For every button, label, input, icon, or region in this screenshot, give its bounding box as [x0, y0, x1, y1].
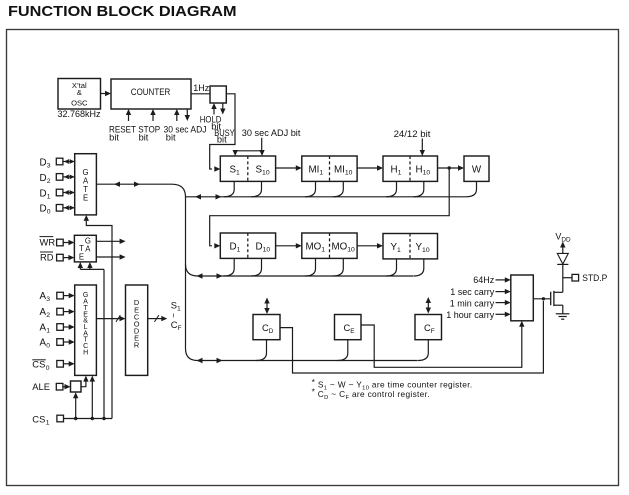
svg-text:0: 0	[46, 343, 50, 350]
svg-text:D: D	[40, 188, 47, 199]
svg-text:~: ~	[169, 313, 178, 318]
svg-text:STD.P: STD.P	[582, 273, 607, 283]
svg-text:2: 2	[47, 178, 51, 185]
svg-text:WR: WR	[40, 236, 56, 247]
svg-text:COUNTER: COUNTER	[131, 87, 171, 97]
svg-text:1 hour carry: 1 hour carry	[446, 310, 495, 320]
svg-text:0: 0	[46, 365, 50, 372]
svg-text:24/12 bit: 24/12 bit	[394, 129, 431, 139]
svg-text:ALE: ALE	[32, 381, 50, 392]
svg-text:30 sec ADJ bit: 30 sec ADJ bit	[242, 128, 301, 138]
svg-text:CS: CS	[32, 413, 45, 424]
svg-text:D: D	[40, 157, 47, 168]
svg-text:32.768kHz: 32.768kHz	[58, 109, 102, 119]
svg-text:&: &	[77, 88, 82, 97]
svg-text:D: D	[40, 204, 47, 215]
svg-text:H: H	[83, 349, 88, 356]
svg-text:64Hz: 64Hz	[473, 275, 495, 285]
svg-text:E: E	[79, 252, 84, 261]
svg-text:CS: CS	[32, 359, 45, 370]
svg-text:bit: bit	[217, 135, 227, 145]
svg-text:1Hz: 1Hz	[193, 83, 210, 93]
svg-text:1: 1	[46, 420, 50, 427]
svg-text:bit: bit	[166, 133, 176, 143]
svg-text:0: 0	[47, 209, 51, 216]
svg-text:R: R	[134, 341, 139, 350]
svg-text:* CD ~ CF are control register: * CD ~ CF are control register.	[312, 387, 430, 401]
svg-text:1: 1	[46, 328, 50, 335]
svg-text:W: W	[472, 164, 482, 175]
svg-text:3: 3	[47, 163, 51, 170]
svg-text:bit: bit	[139, 133, 149, 143]
svg-text:1: 1	[47, 194, 51, 201]
svg-text:1 sec carry: 1 sec carry	[450, 287, 495, 297]
svg-text:FUNCTION BLOCK DIAGRAM: FUNCTION BLOCK DIAGRAM	[8, 4, 237, 20]
svg-text:RD: RD	[40, 252, 54, 263]
svg-text:A: A	[85, 244, 91, 253]
svg-text:3: 3	[46, 296, 50, 303]
svg-text:1 min carry: 1 min carry	[450, 298, 495, 308]
svg-text:2: 2	[46, 312, 50, 319]
svg-text:bit: bit	[109, 133, 119, 143]
svg-text:OSC: OSC	[71, 99, 88, 108]
svg-text:D: D	[40, 173, 47, 184]
svg-text:E: E	[83, 194, 88, 203]
